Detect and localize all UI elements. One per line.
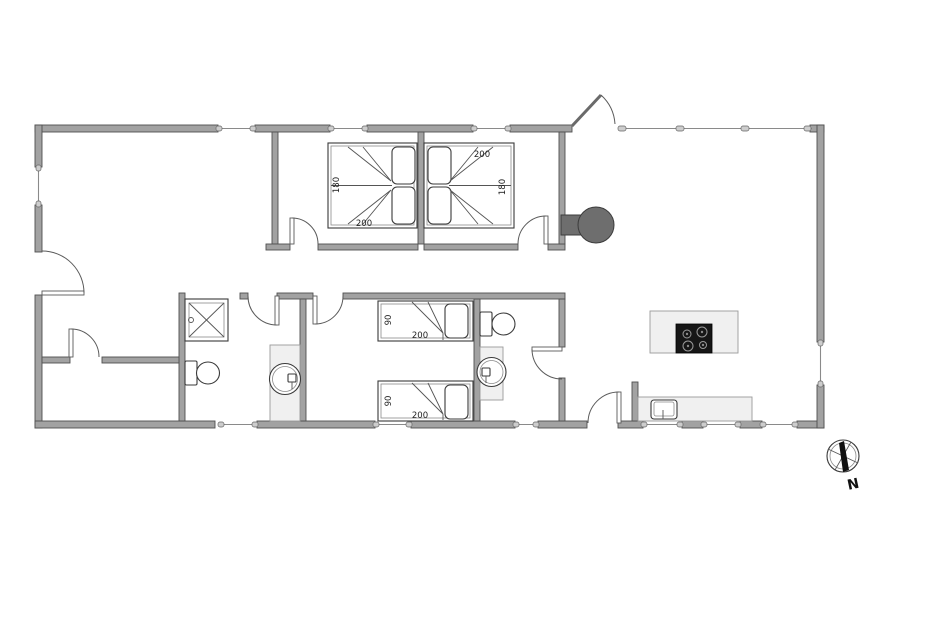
pillow (445, 304, 468, 338)
bed-length-label: 200 (412, 331, 428, 341)
bed-width-label: 180 (498, 179, 508, 195)
single-bed-2: 90 200 (378, 381, 473, 421)
double-bed-1: 180 200 (328, 143, 417, 229)
toilet-2 (480, 312, 515, 336)
pillow (392, 187, 415, 224)
bathroom1-fixtures (185, 299, 301, 421)
terrace-door-bottom (588, 392, 621, 423)
vanity-sink-1 (270, 345, 301, 421)
floor-plan: 180 200 200 180 (0, 0, 930, 620)
bed-length-label: 200 (356, 219, 372, 229)
bedroom2-door (518, 216, 548, 244)
bathroom1-door (248, 296, 279, 325)
kitchen-counter (638, 397, 752, 421)
pillow (428, 187, 451, 224)
bed-width-label: 90 (384, 315, 394, 326)
cooktop (676, 324, 712, 353)
pillow (445, 385, 468, 419)
faucet (482, 368, 490, 376)
bedroom1-door (290, 218, 318, 244)
bed-length-label: 200 (474, 150, 490, 160)
bed-width-label: 180 (332, 177, 342, 193)
compass-rose: N (827, 440, 861, 494)
bed-width-label: 90 (384, 396, 394, 407)
vanity-sink-2 (477, 347, 506, 400)
terrace-door-left (42, 251, 84, 295)
double-bed-2: 200 180 (424, 143, 514, 228)
entry-door (572, 95, 615, 126)
wood-stove (561, 207, 614, 243)
kitchen-sink (651, 400, 677, 419)
shower (185, 299, 228, 341)
bathroom2-door (532, 347, 562, 379)
bathroom2-fixtures (477, 312, 515, 400)
north-label: N (846, 476, 861, 494)
utility-room-door (69, 329, 99, 357)
floor-plan-canvas: 180 200 200 180 (0, 0, 930, 620)
pillow (428, 147, 451, 184)
toilet-1 (185, 361, 220, 385)
bed-length-label: 200 (412, 411, 428, 421)
faucet (288, 374, 296, 382)
bedroom3-door (313, 296, 343, 324)
pillow (392, 147, 415, 184)
single-bed-1: 90 200 (378, 301, 473, 341)
kitchen-island (650, 311, 738, 353)
